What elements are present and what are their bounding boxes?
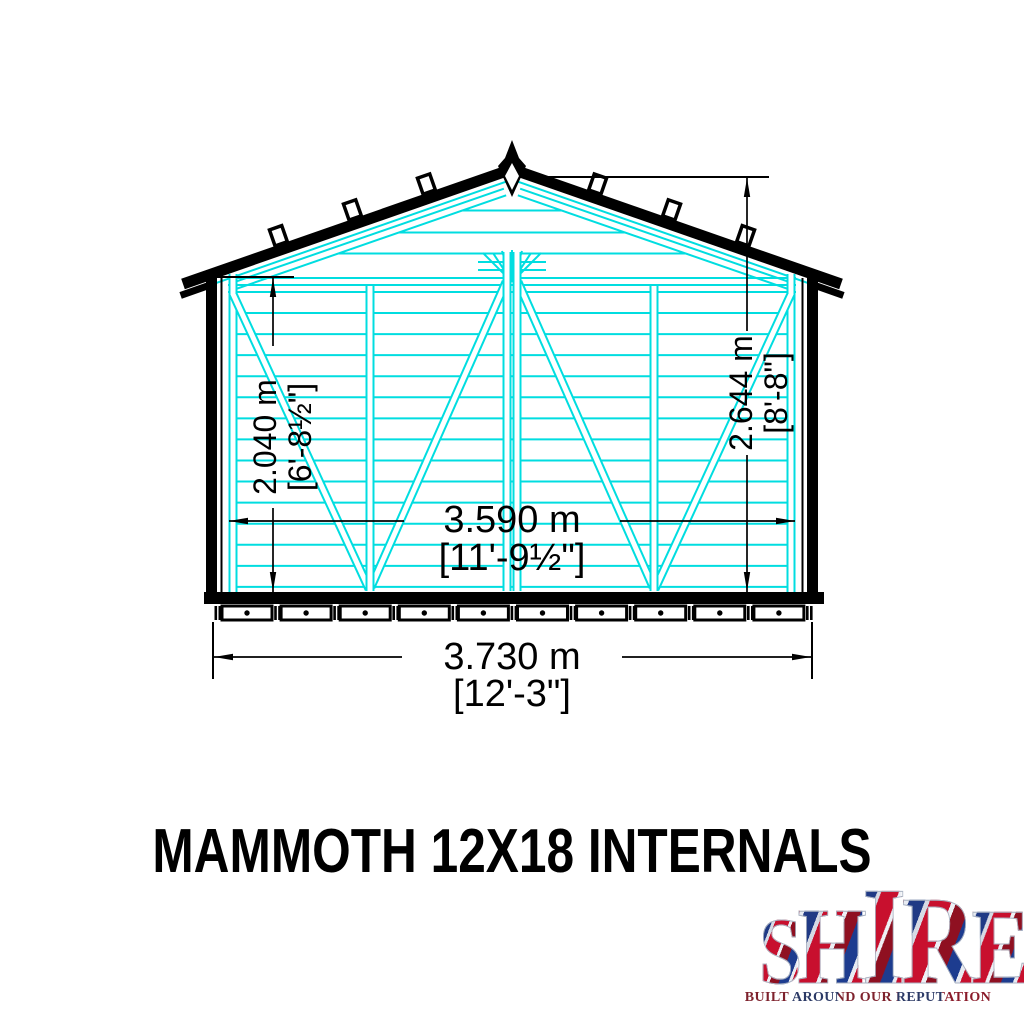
tagline-text: BUILT AROUND OUR REPUTATION <box>745 990 991 1005</box>
page: 2.040 m [6'-8½"] 2.644 m [8'-8"] 3.590 m… <box>0 0 1024 1024</box>
bearer-fixing-dot <box>244 610 249 615</box>
dim-overall-width-imperial: [12'-3"] <box>453 673 571 715</box>
bearer-fixing-dot <box>776 610 781 615</box>
roof-underside-line <box>518 182 832 292</box>
bearer-fixing-dot <box>422 610 427 615</box>
dimension-arrow <box>744 572 750 591</box>
left-wall <box>206 270 217 604</box>
dim-overall-width-metric: 3.730 m <box>443 636 580 678</box>
bearer-tick <box>806 606 809 620</box>
floor-band <box>204 592 824 604</box>
dimension-arrow <box>270 278 276 297</box>
right-wall <box>807 270 818 604</box>
bearer-tick <box>215 606 218 620</box>
dim-ridge-height-metric: 2.644 m <box>723 335 759 451</box>
dimension-arrow <box>270 572 276 591</box>
shire-logo-tagline: BUILT AROUND OUR REPUTATION <box>735 990 1001 1006</box>
logo-letter: S <box>759 898 797 1004</box>
bearer-tick <box>810 606 813 620</box>
bearer-tick <box>570 606 573 620</box>
roof-purlin-block <box>269 226 287 246</box>
roof-purlin-block <box>663 200 681 220</box>
roof-purlin-block <box>417 174 435 194</box>
bearer-fixing-dot <box>363 610 368 615</box>
bearer-tick <box>629 606 632 620</box>
bearer-tick <box>219 606 222 620</box>
bearer-fixing-dot <box>540 610 545 615</box>
roof-purlin-block <box>737 226 755 246</box>
bearer-tick <box>274 606 277 620</box>
roof-purlin-block <box>343 200 361 220</box>
roof-slope <box>515 170 841 284</box>
bearer-fixing-dot <box>481 610 486 615</box>
dim-wall-height-imperial: [6'-8½"] <box>282 383 318 491</box>
logo-letter: H <box>797 886 862 1007</box>
dimension-arrow <box>792 654 811 660</box>
bearer-fixing-dot <box>599 610 604 615</box>
dimension-arrow <box>744 178 750 197</box>
bearer-tick <box>452 606 455 620</box>
dim-internal-width-imperial: [11'-9½"] <box>439 537 586 579</box>
roof-slope <box>183 170 509 284</box>
bearer-tick <box>392 606 395 620</box>
dimension-arrow <box>214 654 233 660</box>
bearer-fixing-dot <box>717 610 722 615</box>
bearer-fixing-dot <box>658 610 663 615</box>
dim-ridge-height-imperial: [8'-8"] <box>758 352 794 434</box>
bearer-tick <box>688 606 691 620</box>
bearer-tick <box>511 606 514 620</box>
bearer-tick <box>333 606 336 620</box>
bearer-tick <box>747 606 750 620</box>
dim-internal-width-metric: 3.590 m <box>443 499 580 541</box>
dim-wall-height-metric: 2.040 m <box>247 379 283 495</box>
roof-underside-line <box>192 182 506 292</box>
bearer-fixing-dot <box>303 610 308 615</box>
